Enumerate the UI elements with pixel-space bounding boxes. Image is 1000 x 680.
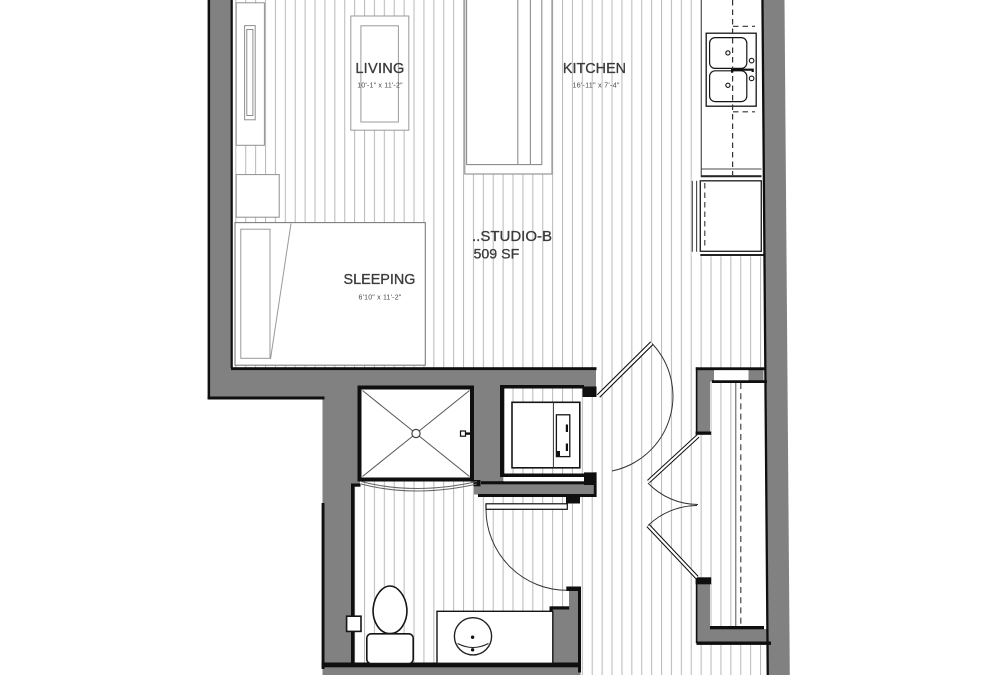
svg-text:16'-11" x 7'-4": 16'-11" x 7'-4" (572, 81, 620, 90)
svg-text:KITCHEN: KITCHEN (563, 61, 626, 77)
svg-text:509 SF: 509 SF (474, 247, 520, 263)
svg-text:SLEEPING: SLEEPING (344, 272, 416, 288)
svg-text:LIVING: LIVING (355, 61, 404, 77)
svg-text:..STUDIO-B: ..STUDIO-B (472, 228, 552, 245)
svg-text:10'-1" x 11'-2": 10'-1" x 11'-2" (357, 83, 403, 90)
svg-text:6'10" x 11'-2": 6'10" x 11'-2" (358, 295, 401, 302)
